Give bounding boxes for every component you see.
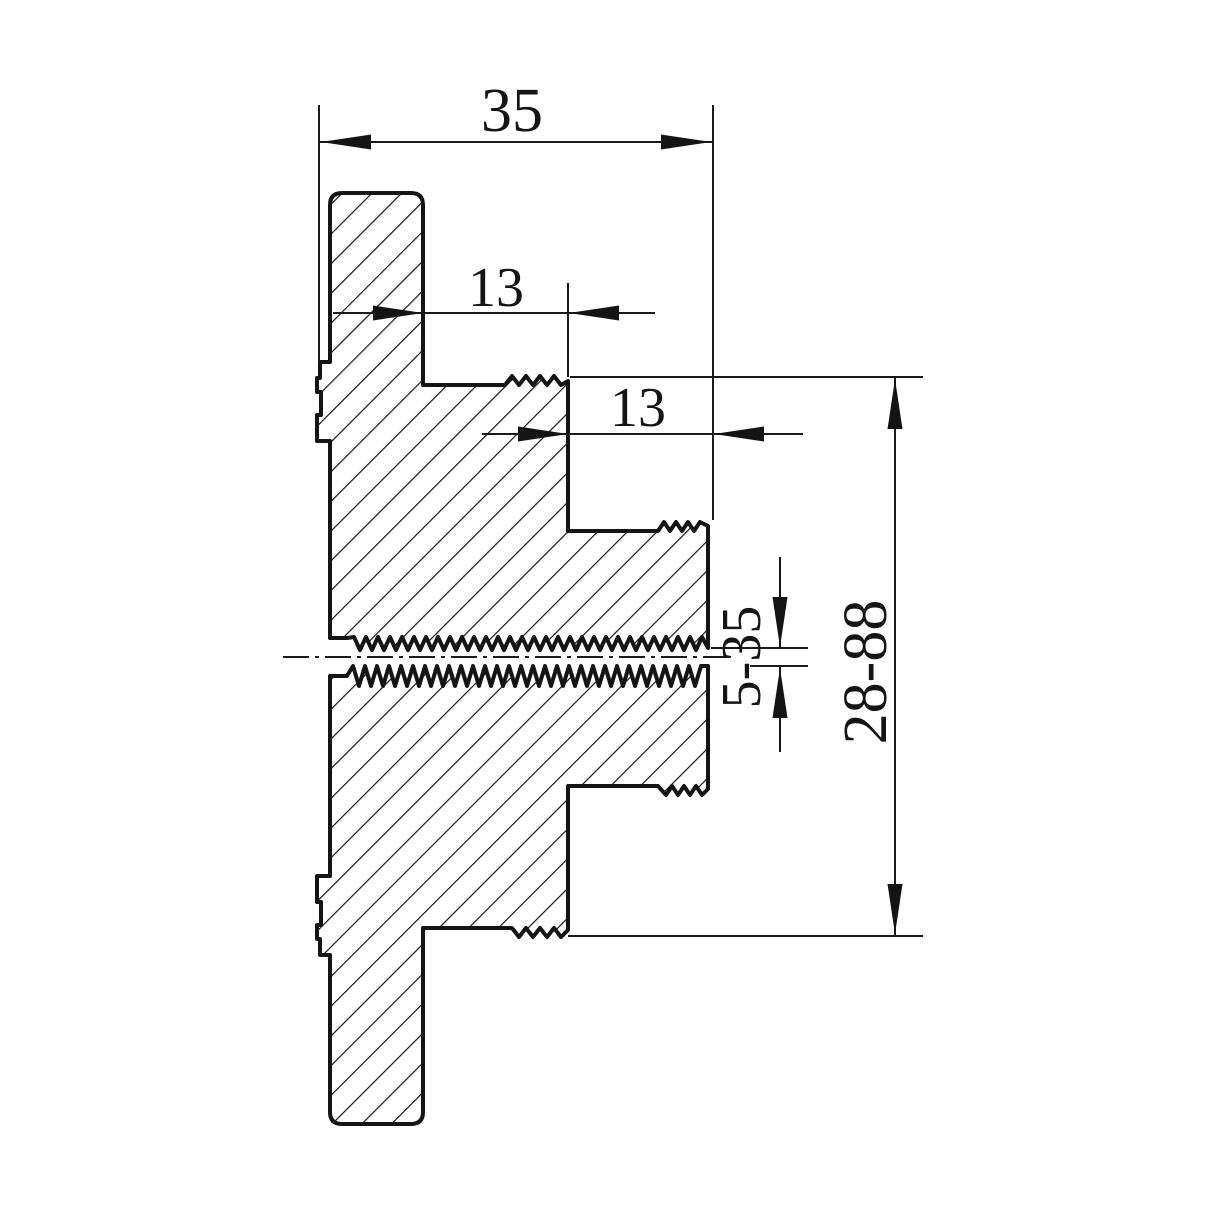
part-lower-half [317, 666, 708, 1124]
arrowhead-5-35-upper [773, 597, 788, 647]
dim-label-step-depth-1: 13 [468, 257, 524, 319]
technical-drawing: 35 13 13 5-35 28-88 [0, 0, 1214, 1214]
drawing-canvas: 35 13 13 5-35 28-88 [0, 0, 1214, 1214]
dim-label-step-depth-2: 13 [610, 377, 666, 439]
dim-label-bore-range: 5-35 [711, 606, 773, 709]
arrowhead-13a-right [569, 306, 619, 321]
dim-label-overall-width: 35 [481, 77, 543, 145]
arrowhead-35-right [661, 135, 711, 150]
arrowhead-28-88-top [888, 379, 903, 429]
arrowhead-13b-right [714, 427, 764, 442]
dim-label-flange-range: 28-88 [832, 600, 900, 745]
arrowhead-35-left [321, 135, 371, 150]
arrowhead-28-88-bottom [888, 884, 903, 934]
arrowhead-5-35-lower [773, 668, 788, 718]
